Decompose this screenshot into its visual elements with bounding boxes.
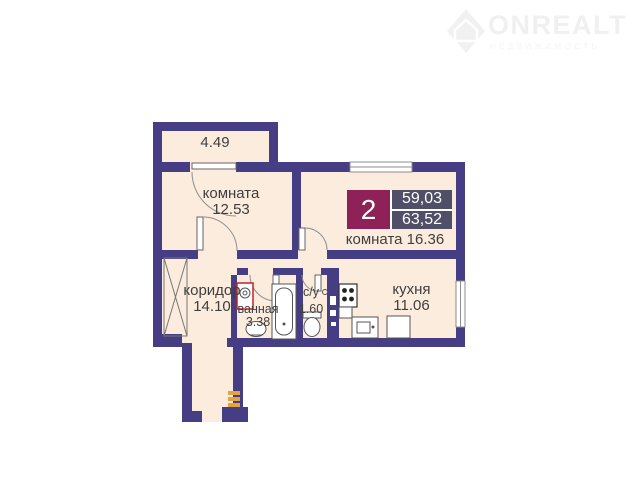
area-value-top: 59,03 — [392, 190, 452, 211]
corridor-name: коридор — [168, 283, 256, 299]
bathroom-label: ванная 3.38 — [228, 303, 288, 329]
room1-area: 12.53 — [171, 202, 291, 218]
area-values-badge: 59,03 63,52 — [392, 190, 452, 229]
balcony-area-label: 4.49 — [175, 135, 255, 151]
kitchen-area: 11.06 — [374, 298, 449, 314]
kitchen-label: кухня 11.06 — [374, 282, 449, 314]
entrance-door-marks — [228, 391, 240, 407]
bathroom-area: 3.38 — [228, 316, 288, 329]
floor-areas — [162, 131, 456, 422]
stove — [339, 284, 357, 307]
room2-window — [350, 162, 412, 172]
room1-name: комната — [171, 186, 291, 202]
wc-area-label: 1.60 — [292, 303, 330, 316]
room-count-badge: 2 — [347, 190, 390, 229]
floor-plan — [0, 0, 634, 487]
room1-label: комната 12.53 — [171, 186, 291, 218]
area-value-bottom: 63,52 — [392, 211, 452, 230]
kitchen-name: кухня — [374, 282, 449, 298]
kitchen-window — [456, 281, 465, 327]
room2-area: 16.36 — [407, 231, 445, 248]
wc-name-label: с/у — [294, 286, 328, 299]
floor-plan-canvas: ONREALT НЕДВИЖИМОСТЬ — [0, 0, 634, 487]
apartment-info-badge: 2 59,03 63,52 — [347, 190, 452, 229]
room2-label: комната 16.36 — [330, 232, 460, 248]
room2-name: комната — [346, 231, 403, 248]
